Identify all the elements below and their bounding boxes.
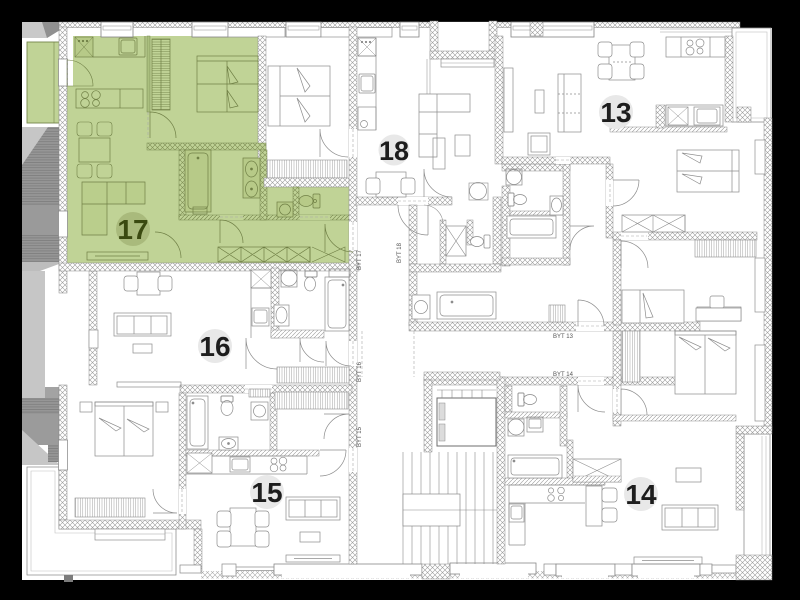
svg-text:BYT 16: BYT 16 [357, 361, 363, 382]
svg-text:18: 18 [379, 136, 409, 166]
svg-text:16: 16 [199, 331, 230, 362]
svg-text:BYT 13: BYT 13 [553, 334, 574, 340]
svg-text:BYT 14: BYT 14 [553, 372, 574, 378]
svg-text:14: 14 [625, 479, 657, 510]
svg-text:BYT 17: BYT 17 [357, 249, 363, 270]
svg-text:13: 13 [600, 97, 631, 128]
svg-text:BYT 18: BYT 18 [397, 242, 403, 263]
svg-text:BYT 15: BYT 15 [357, 426, 363, 447]
svg-text:17: 17 [117, 214, 148, 245]
svg-text:15: 15 [251, 477, 282, 508]
